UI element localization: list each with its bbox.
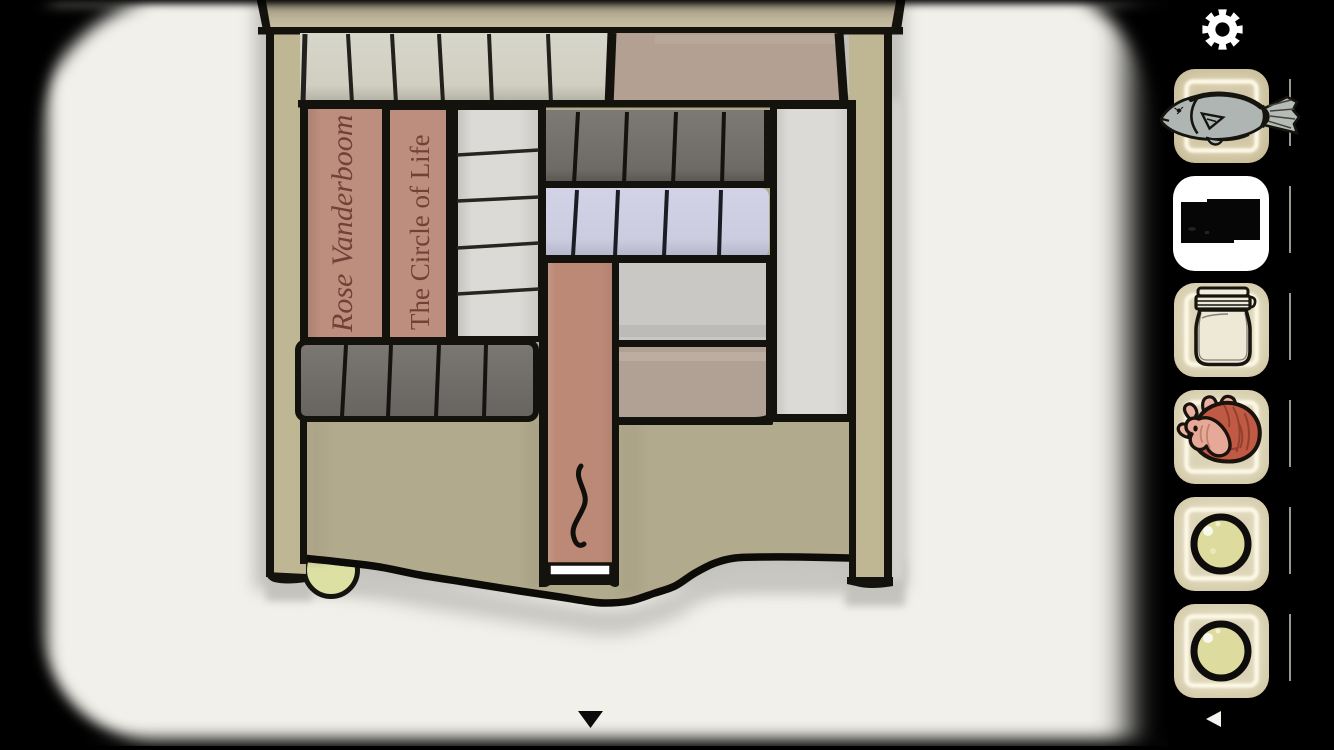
svg-text:The Circle of Life: The Circle of Life [405, 134, 435, 330]
svg-text:Rose Vanderboom: Rose Vanderboom [326, 115, 359, 333]
